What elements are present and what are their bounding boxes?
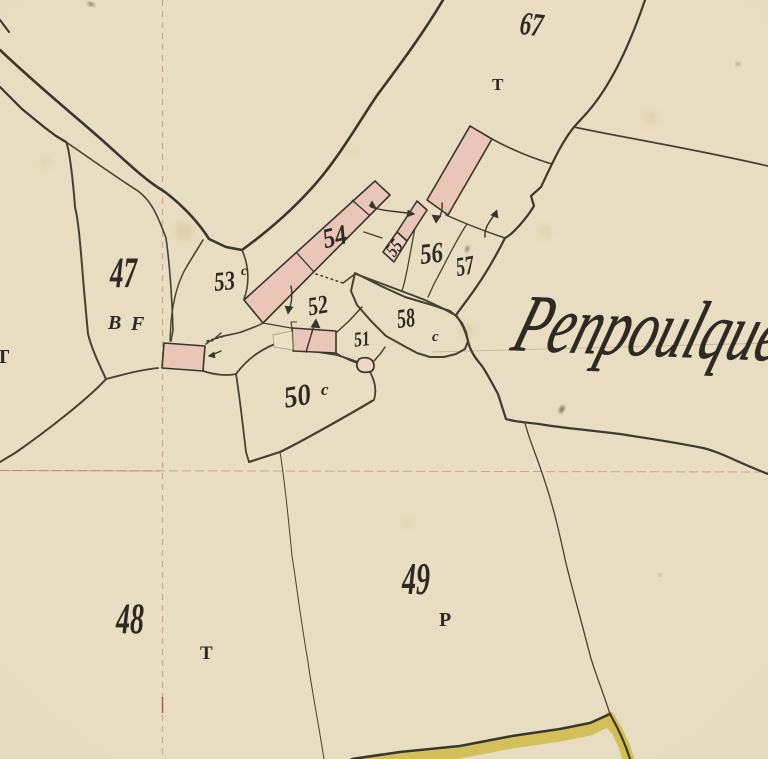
svg-text:c: c xyxy=(321,380,329,399)
svg-text:51: 51 xyxy=(352,326,371,352)
svg-text:49: 49 xyxy=(401,553,430,604)
svg-text:T: T xyxy=(492,75,504,94)
svg-text:53: 53 xyxy=(213,265,237,297)
svg-text:T: T xyxy=(0,346,10,368)
svg-text:T: T xyxy=(200,643,213,664)
svg-text:Penpoulque: Penpoulque xyxy=(502,278,768,379)
svg-text:47: 47 xyxy=(109,250,138,297)
svg-text:c: c xyxy=(241,264,248,279)
svg-text:P: P xyxy=(439,609,451,631)
svg-text:50: 50 xyxy=(281,378,313,415)
svg-text:c: c xyxy=(432,329,439,345)
svg-text:F: F xyxy=(130,313,145,335)
svg-text:56: 56 xyxy=(418,237,445,271)
svg-text:B: B xyxy=(107,312,121,334)
svg-text:48: 48 xyxy=(115,596,144,643)
